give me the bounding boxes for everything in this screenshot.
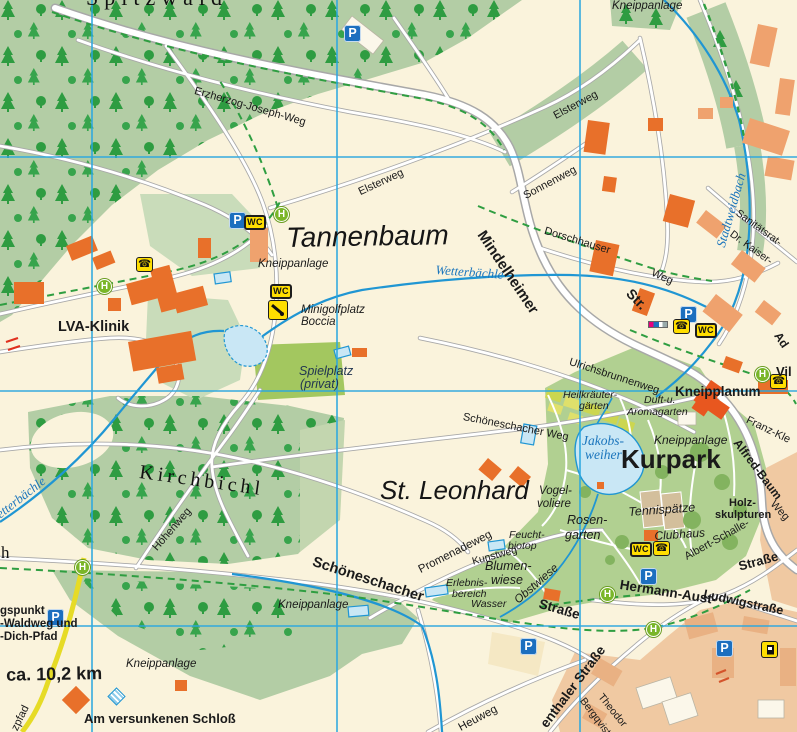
city-map: PPPPPPPWCWCWCWCHHHHHH☎☎☎☎ SpitzwaldErzhe… (0, 0, 797, 732)
map-canvas (0, 0, 797, 732)
tennis-courts (640, 490, 685, 530)
